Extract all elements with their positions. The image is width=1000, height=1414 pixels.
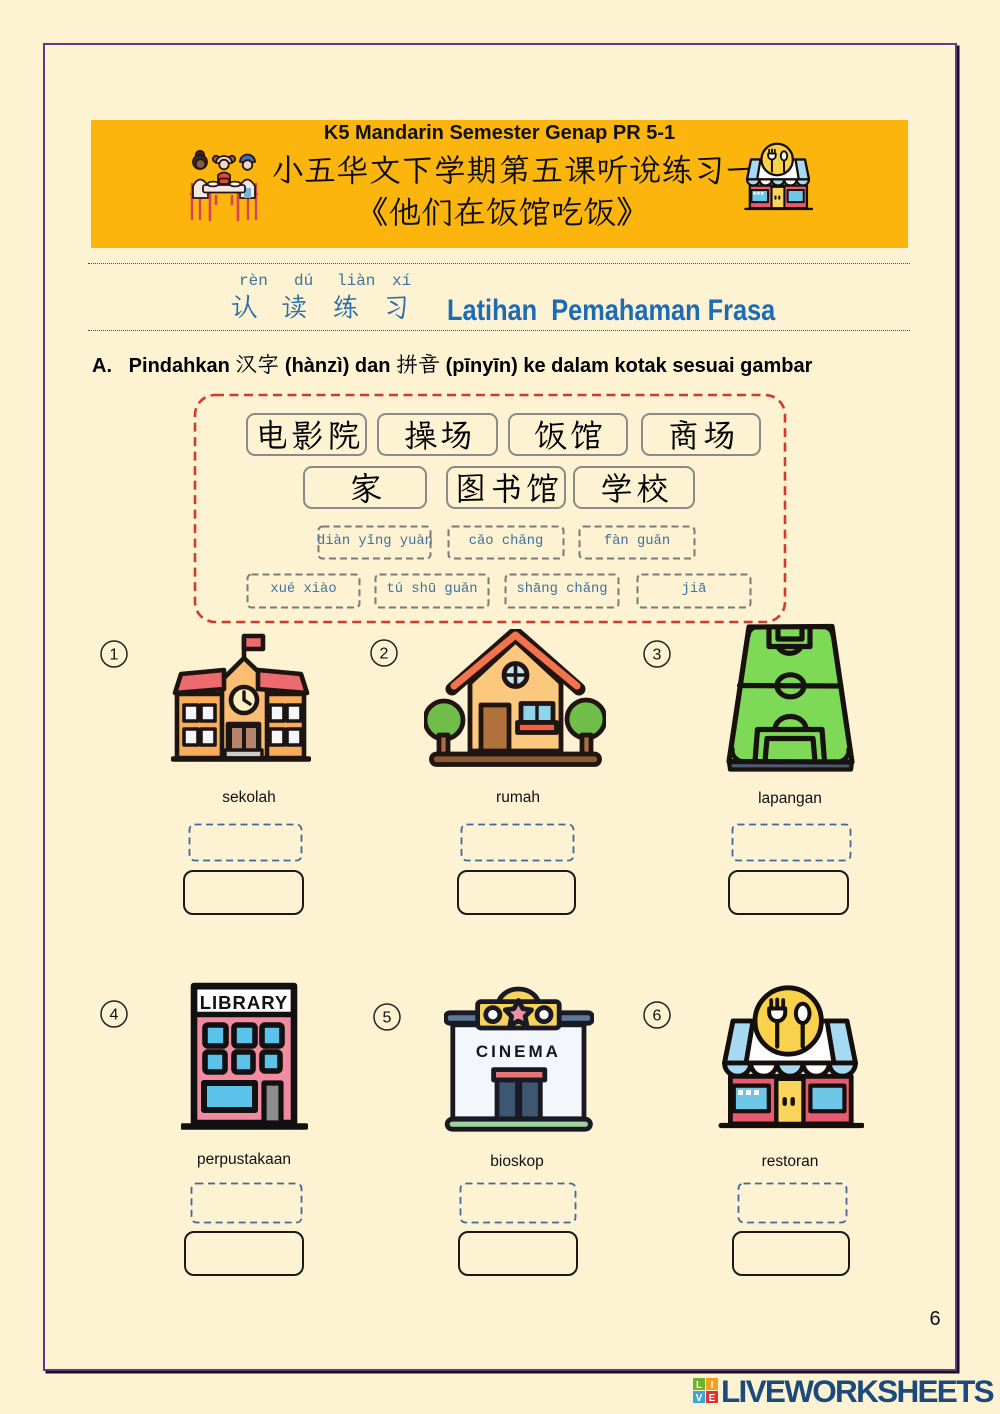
svg-text:I: I xyxy=(711,1380,714,1391)
svg-text:L: L xyxy=(696,1380,702,1391)
svg-text:6: 6 xyxy=(653,1008,662,1025)
svg-text:4: 4 xyxy=(110,1007,119,1024)
svg-text:CINEMA: CINEMA xyxy=(476,1042,561,1061)
svg-text:V: V xyxy=(696,1393,703,1404)
svg-text:3: 3 xyxy=(653,647,662,664)
svg-text:LIBRARY: LIBRARY xyxy=(200,992,289,1013)
svg-text:2: 2 xyxy=(380,646,389,663)
svg-text:1: 1 xyxy=(110,647,119,664)
svg-text:E: E xyxy=(709,1393,716,1404)
svg-text:5: 5 xyxy=(383,1010,392,1027)
